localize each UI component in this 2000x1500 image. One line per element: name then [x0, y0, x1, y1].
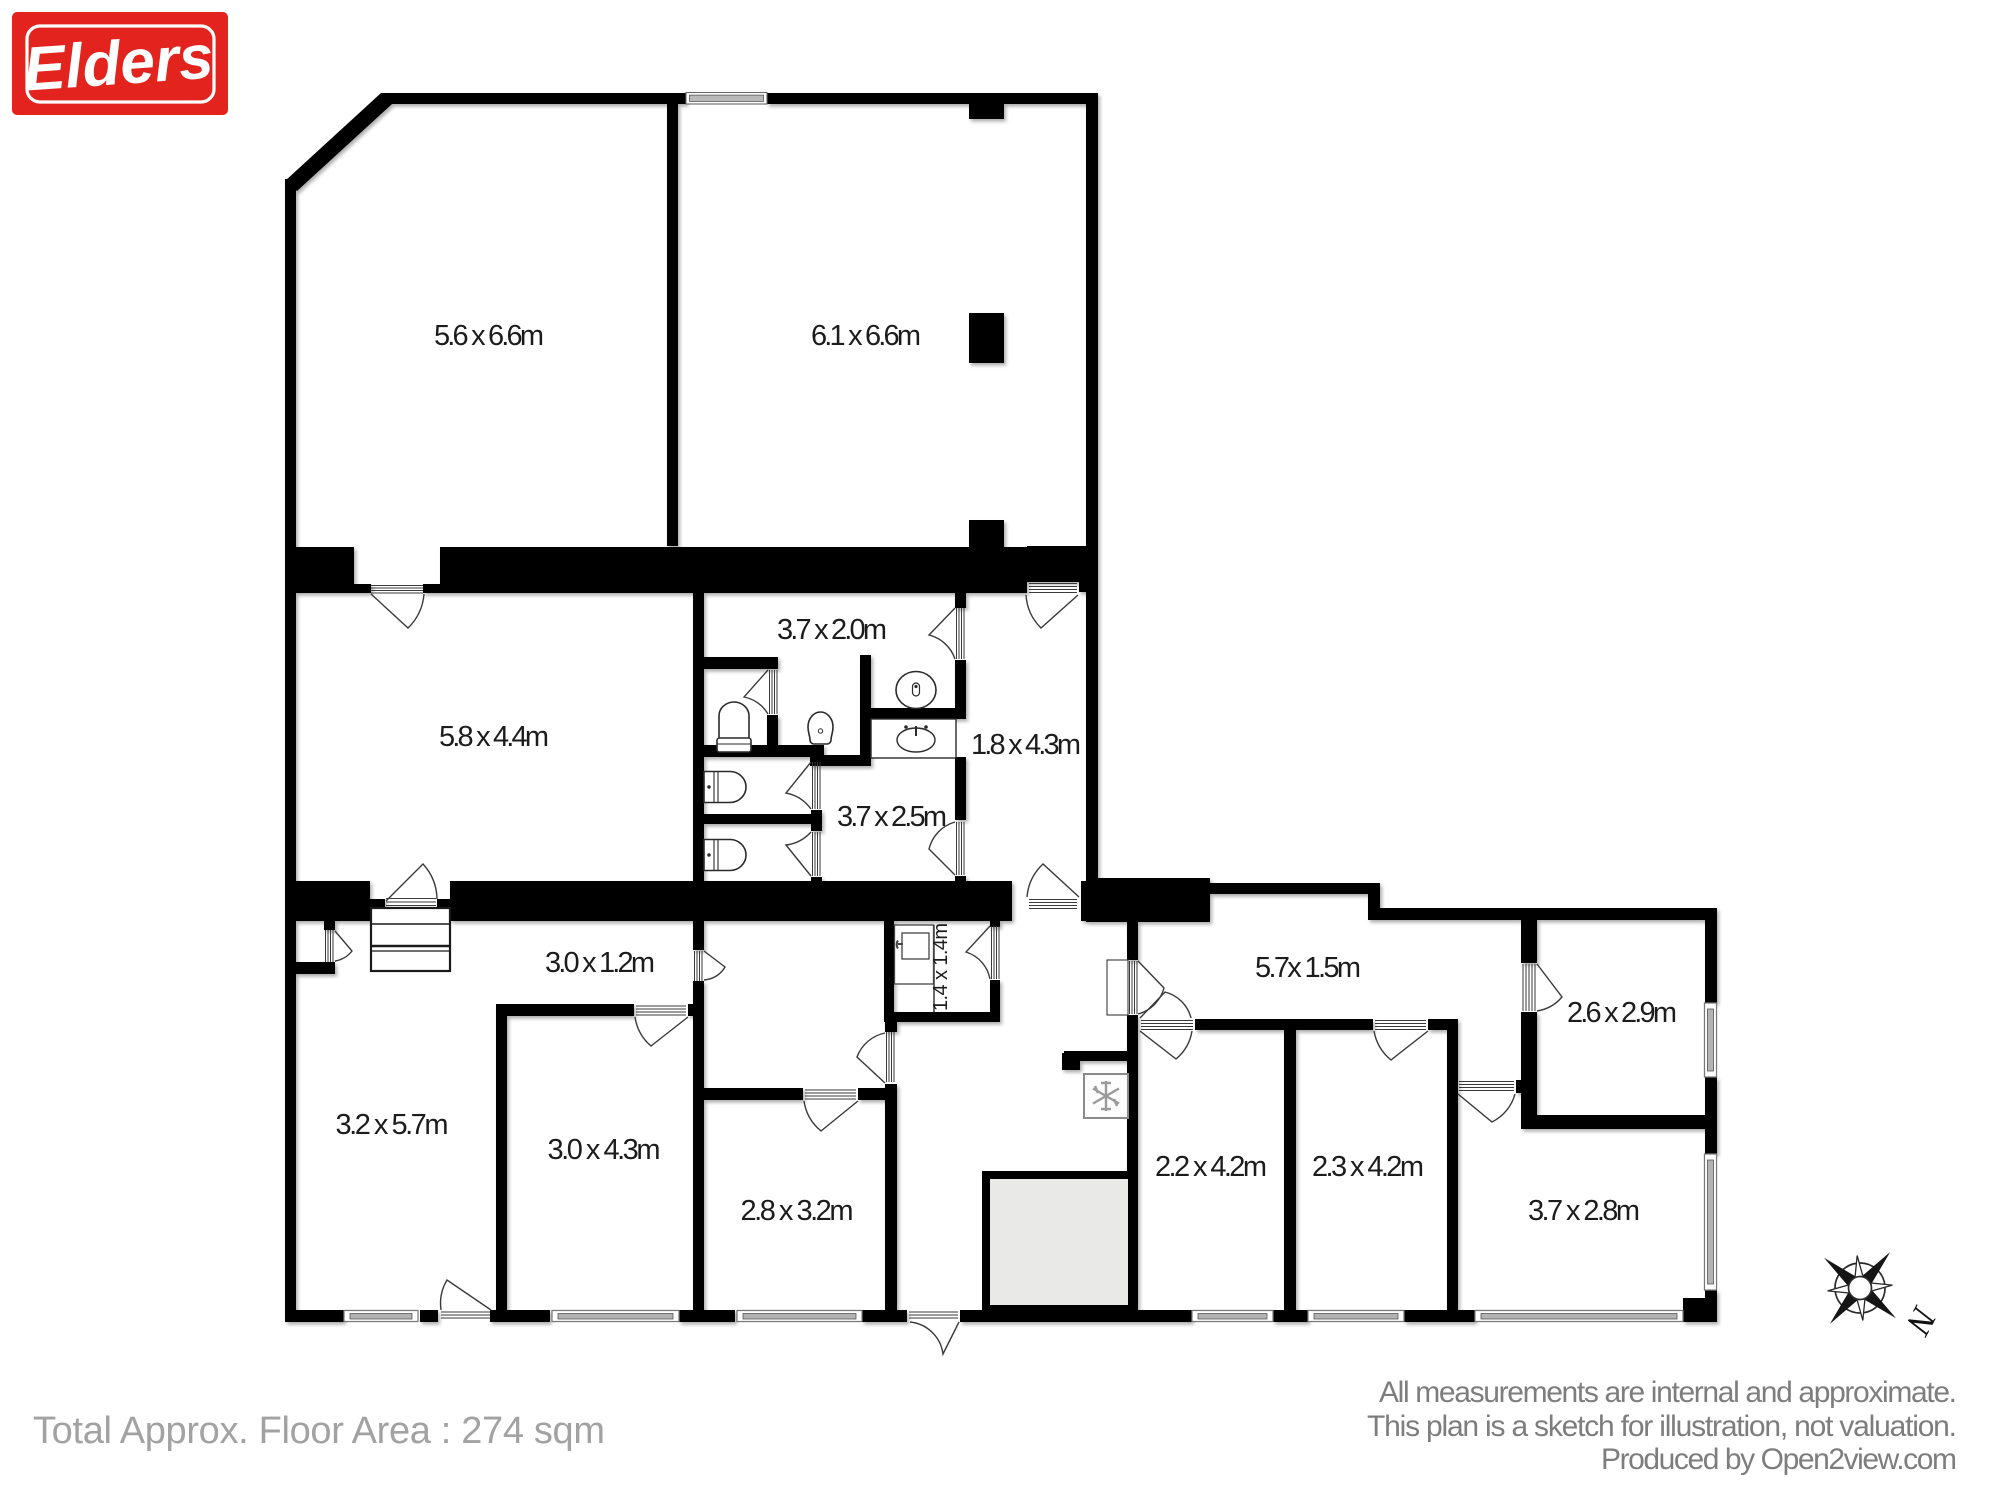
svg-text:All measurements are internal: All measurements are internal and approx… — [1379, 1376, 1957, 1409]
svg-text:3.7 x 2.5m: 3.7 x 2.5m — [837, 801, 947, 833]
svg-text:3.7 x 2.8m: 3.7 x 2.8m — [1528, 1195, 1640, 1227]
svg-text:2.3 x 4.2m: 2.3 x 4.2m — [1312, 1151, 1424, 1183]
svg-text:3.0 x 4.3m: 3.0 x 4.3m — [548, 1134, 661, 1166]
svg-text:1.4 x 1.4m: 1.4 x 1.4m — [930, 923, 952, 1011]
svg-text:5.6 x 6.6m: 5.6 x 6.6m — [434, 320, 544, 352]
svg-text:1.8 x 4.3m: 1.8 x 4.3m — [971, 729, 1081, 761]
svg-text:3.7 x 2.0m: 3.7 x 2.0m — [777, 614, 887, 646]
svg-text:5.8 x 4.4m: 5.8 x 4.4m — [439, 721, 549, 753]
svg-text:2.6 x 2.9m: 2.6 x 2.9m — [1567, 997, 1677, 1029]
svg-text:This plan is a sketch for illu: This plan is a sketch for illustration, … — [1367, 1410, 1957, 1443]
svg-text:Elders: Elders — [22, 22, 216, 104]
svg-text:Total Approx. Floor Area : 274: Total Approx. Floor Area : 274 sqm — [33, 1410, 605, 1452]
svg-text:3.0 x 1.2m: 3.0 x 1.2m — [545, 947, 655, 979]
svg-text:5.7x 1.5m: 5.7x 1.5m — [1255, 952, 1361, 984]
svg-text:6.1 x 6.6m: 6.1 x 6.6m — [811, 320, 921, 352]
svg-text:2.2 x 4.2m: 2.2 x 4.2m — [1155, 1151, 1267, 1183]
svg-text:3.2 x 5.7m: 3.2 x 5.7m — [336, 1109, 449, 1141]
svg-text:N: N — [1897, 1300, 1945, 1343]
svg-text:2.8 x 3.2m: 2.8 x 3.2m — [741, 1195, 854, 1227]
svg-text:Produced by Open2view.com: Produced by Open2view.com — [1601, 1443, 1957, 1476]
